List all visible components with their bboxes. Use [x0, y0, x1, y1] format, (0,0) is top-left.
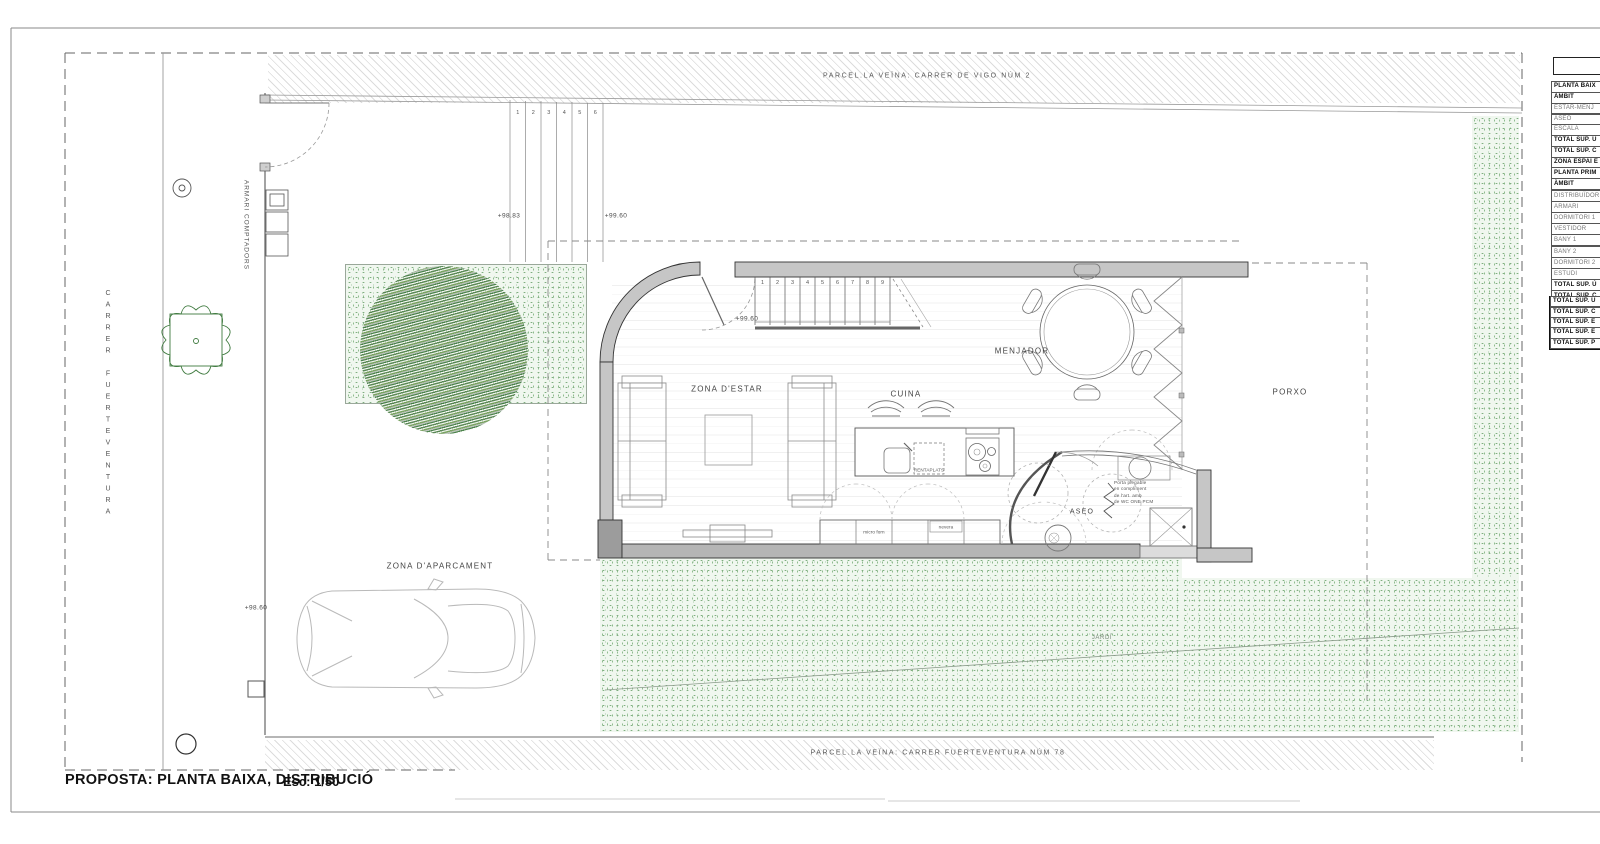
parcel-boundary — [65, 53, 1522, 770]
table-row: PLANTA PRIM — [1551, 167, 1600, 179]
floor-plan-drawing — [0, 0, 1600, 844]
dining-room-label: MENJADOR — [995, 347, 1050, 356]
car-top-view — [297, 579, 535, 698]
house-walls — [598, 262, 1252, 562]
neighbor-bottom-label: PARCEL.LA VEÏNA: CARRER FUERTEVENTURA NÚ… — [811, 750, 1066, 757]
step-number: 7 — [845, 280, 860, 286]
parking-marker-square — [248, 681, 264, 697]
exterior-steps — [510, 100, 603, 262]
kitchen-island — [855, 401, 1014, 476]
sheet-scale: Esc: 1/50 — [283, 774, 339, 789]
garden-slope-line — [605, 628, 1519, 690]
step-number: 5 — [572, 110, 588, 116]
table-row: ESTAR-MENJ — [1551, 103, 1600, 115]
step-number: 5 — [815, 280, 830, 286]
meter-cabinet-boxes — [266, 190, 288, 256]
meter-cabinet-label: ARMARI COMPTADORS — [243, 180, 250, 270]
step-number: 6 — [830, 280, 845, 286]
table-row: BANY 1 — [1551, 234, 1600, 246]
folding-glass-facade — [1154, 277, 1184, 470]
table-row: TOTAL SUP. E — [1550, 317, 1600, 328]
microwave-label: micro forn — [859, 530, 889, 535]
level-parking: +98.60 — [245, 605, 267, 612]
fridge-label: nevera — [939, 525, 954, 530]
utility-manhole-icon — [173, 179, 191, 197]
living-room-label: ZONA D'ESTAR — [691, 385, 763, 394]
exterior-step-numbers: 123456 — [510, 110, 603, 116]
parking-zone-label: ZONA D'APARCAMENT — [387, 562, 494, 571]
street-tree-icon — [162, 306, 230, 374]
table-row: TOTAL SUP. P — [1550, 338, 1600, 349]
step-number: 2 — [526, 110, 542, 116]
table-row: DORMITORI 2 — [1551, 257, 1600, 269]
step-number: 4 — [800, 280, 815, 286]
porch-label: PORXO — [1273, 388, 1308, 397]
page-border — [11, 28, 1600, 812]
table-row: VESTIDOR — [1551, 223, 1600, 235]
table-row: TOTAL SUP. Ú — [1551, 279, 1600, 291]
level-entry-top: +99.60 — [605, 213, 627, 220]
living-room-furniture — [618, 376, 836, 542]
panel-header-box — [1553, 57, 1600, 75]
table-row: TOTAL SUP. Ú — [1551, 135, 1600, 147]
table-row: TOTAL SUP. Ú — [1550, 296, 1600, 307]
level-interior: +99.60 — [736, 316, 758, 323]
kitchen-label: CUINA — [891, 390, 922, 399]
bathroom-door-note: Porta plegableen complimentde l'art. amb… — [1114, 480, 1153, 505]
bathroom-label: ASEO — [1070, 509, 1094, 516]
step-number: 8 — [860, 280, 875, 286]
interior-step-numbers: 123456789 — [755, 280, 890, 286]
street-and-fence-lines — [163, 53, 1522, 770]
step-number: 4 — [557, 110, 573, 116]
floor-plan-sheet: PARCEL.LA VEÏNA: CARRER DE VIGO NÚM 2 PA… — [0, 0, 1600, 844]
step-number: 2 — [770, 280, 785, 286]
table-row: PLANTA BAIX — [1551, 81, 1600, 93]
step-number: 1 — [755, 280, 770, 286]
garden-label: JARDÍ — [1092, 635, 1112, 641]
neighbor-top-label: PARCEL.LA VEÏNA: CARRER DE VIGO NÚM 2 — [823, 73, 1031, 80]
street-name-label: CARRER FUERTEVENTURA — [105, 290, 112, 520]
table-row: BANY 2 — [1551, 246, 1600, 258]
step-number: 9 — [875, 280, 890, 286]
table-row: ARMARI — [1551, 201, 1600, 213]
table-row: DORMITORI 1 — [1551, 212, 1600, 224]
table-row: DISTRIBUÏDOR — [1551, 190, 1600, 202]
dining-table — [1021, 264, 1154, 400]
step-number: 3 — [541, 110, 557, 116]
table-row: ÀMBIT — [1551, 178, 1600, 190]
bathroom — [1008, 451, 1196, 551]
level-street-top: +98.83 — [498, 213, 520, 220]
area-table-ground-floor: PLANTA BAIXÀMBITESTAR-MENJASEOESCALATOTA… — [1551, 82, 1600, 168]
step-number: 6 — [588, 110, 604, 116]
table-row: TOTAL SUP. E — [1550, 327, 1600, 338]
table-row: TOTAL SUP. C — [1551, 146, 1600, 158]
table-row: TOTAL SUP. C — [1550, 307, 1600, 318]
area-table-first-floor: PLANTA PRIMÀMBITDISTRIBUÏDORARMARIDORMIT… — [1551, 168, 1600, 302]
dishwasher-label: RENTAPLATS — [914, 468, 944, 473]
step-number: 3 — [785, 280, 800, 286]
street-circle-marker — [176, 734, 196, 754]
step-number: 1 — [510, 110, 526, 116]
table-row: ESTUDI — [1551, 268, 1600, 280]
area-table-totals: TOTAL SUP. ÚTOTAL SUP. CTOTAL SUP. ETOTA… — [1549, 296, 1600, 350]
